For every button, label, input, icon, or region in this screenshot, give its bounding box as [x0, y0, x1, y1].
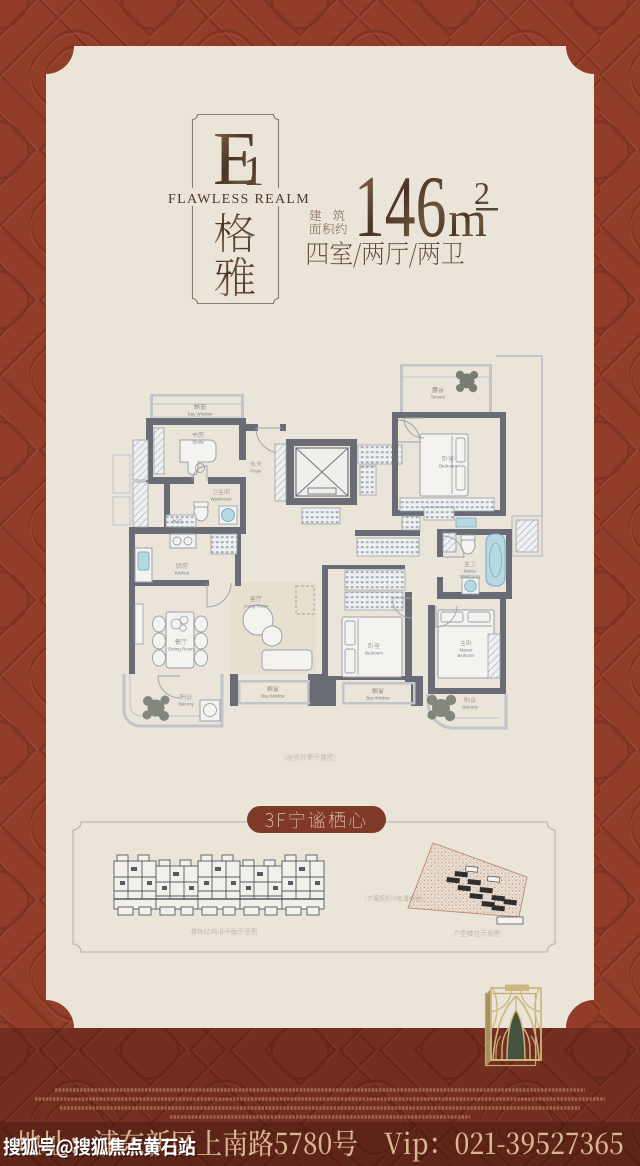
- svg-text:Bedroom: Bedroom: [365, 651, 383, 656]
- svg-text:Kitchen: Kitchen: [175, 571, 190, 576]
- svg-text:Balcony: Balcony: [178, 702, 194, 707]
- svg-text:Bedroom: Bedroom: [439, 464, 457, 469]
- svg-text:Bay Window: Bay Window: [261, 694, 285, 699]
- svg-text:Washroom: Washroom: [210, 497, 231, 502]
- svg-text:Terrace: Terrace: [431, 395, 446, 400]
- svg-text:Living Room: Living Room: [244, 604, 269, 609]
- svg-text:Washroom: Washroom: [460, 574, 481, 579]
- svg-text:Balcony: Balcony: [462, 705, 478, 710]
- svg-text:FLAWLESS REALM: FLAWLESS REALM: [168, 192, 310, 207]
- svg-text:Master: Master: [460, 648, 473, 653]
- svg-text:Foyer: Foyer: [250, 469, 262, 474]
- svg-text:Dining Room: Dining Room: [168, 647, 194, 652]
- svg-text:Master: Master: [464, 569, 477, 574]
- svg-text:Bedroom: Bedroom: [458, 653, 476, 658]
- svg-text:146: 146: [354, 158, 446, 255]
- svg-text:2: 2: [474, 175, 490, 211]
- svg-text:Bay Window: Bay Window: [366, 696, 390, 701]
- svg-text:1: 1: [243, 149, 264, 195]
- svg-text:Bay Window: Bay Window: [188, 412, 213, 417]
- svg-text:Study: Study: [192, 440, 204, 445]
